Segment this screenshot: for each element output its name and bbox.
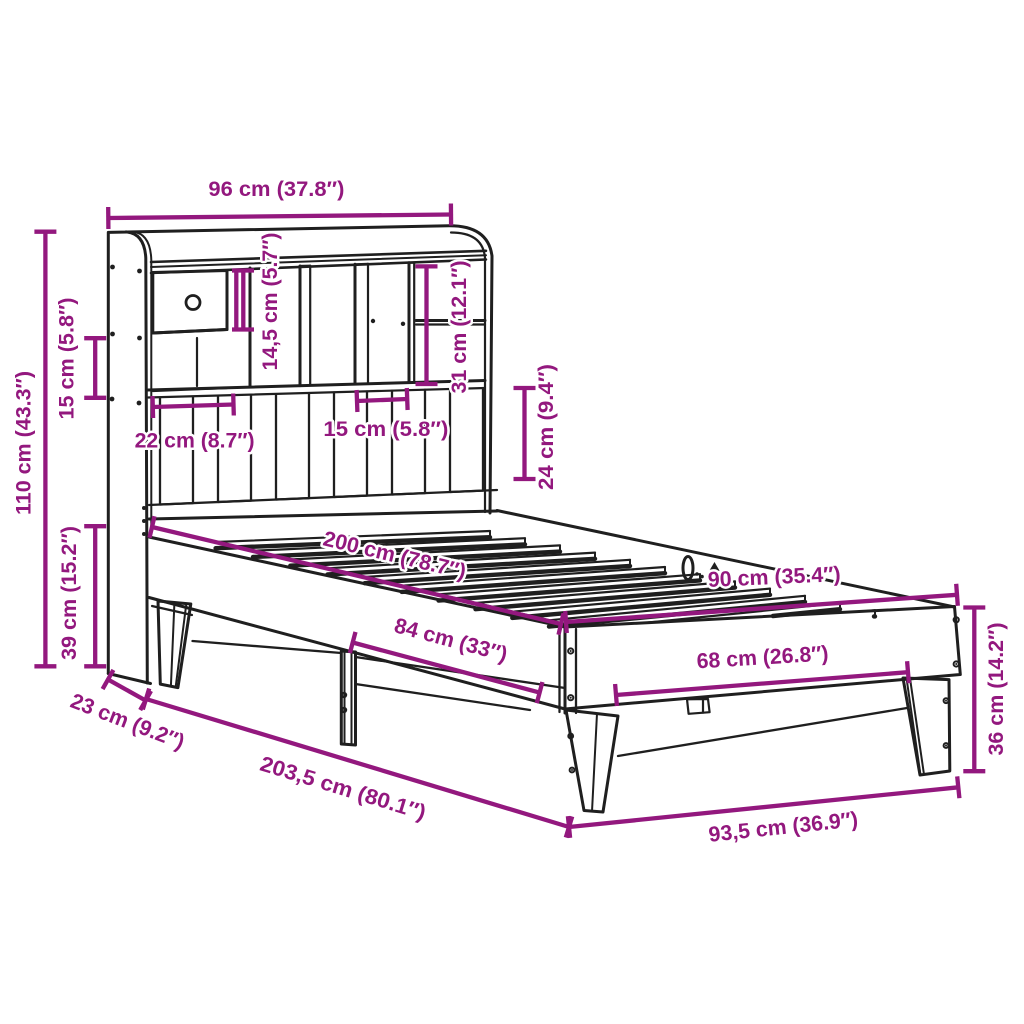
svg-text:90 cm (35.4″): 90 cm (35.4″) (707, 562, 841, 592)
svg-text:22 cm (8.7″): 22 cm (8.7″) (135, 429, 255, 453)
svg-text:23 cm (9.2″): 23 cm (9.2″) (67, 689, 188, 754)
svg-text:110 cm (43.3″): 110 cm (43.3″) (12, 371, 36, 515)
svg-text:31 cm (12.1″): 31 cm (12.1″) (447, 261, 471, 394)
svg-text:96 cm (37.8″): 96 cm (37.8″) (208, 177, 344, 201)
svg-text:15 cm (5.8″): 15 cm (5.8″) (55, 298, 79, 420)
svg-text:203,5 cm (80.1″): 203,5 cm (80.1″) (257, 752, 429, 825)
svg-text:14,5 cm (5.7″): 14,5 cm (5.7″) (258, 233, 282, 371)
svg-text:36 cm (14.2″): 36 cm (14.2″) (984, 623, 1008, 756)
svg-text:68 cm (26.8″): 68 cm (26.8″) (696, 641, 829, 673)
svg-text:15 cm (5.8″): 15 cm (5.8″) (323, 417, 448, 441)
svg-text:93,5 cm (36.9″): 93,5 cm (36.9″) (707, 807, 859, 847)
svg-text:39 cm (15.2″): 39 cm (15.2″) (57, 526, 81, 660)
svg-text:24 cm (9.4″): 24 cm (9.4″) (534, 364, 558, 490)
